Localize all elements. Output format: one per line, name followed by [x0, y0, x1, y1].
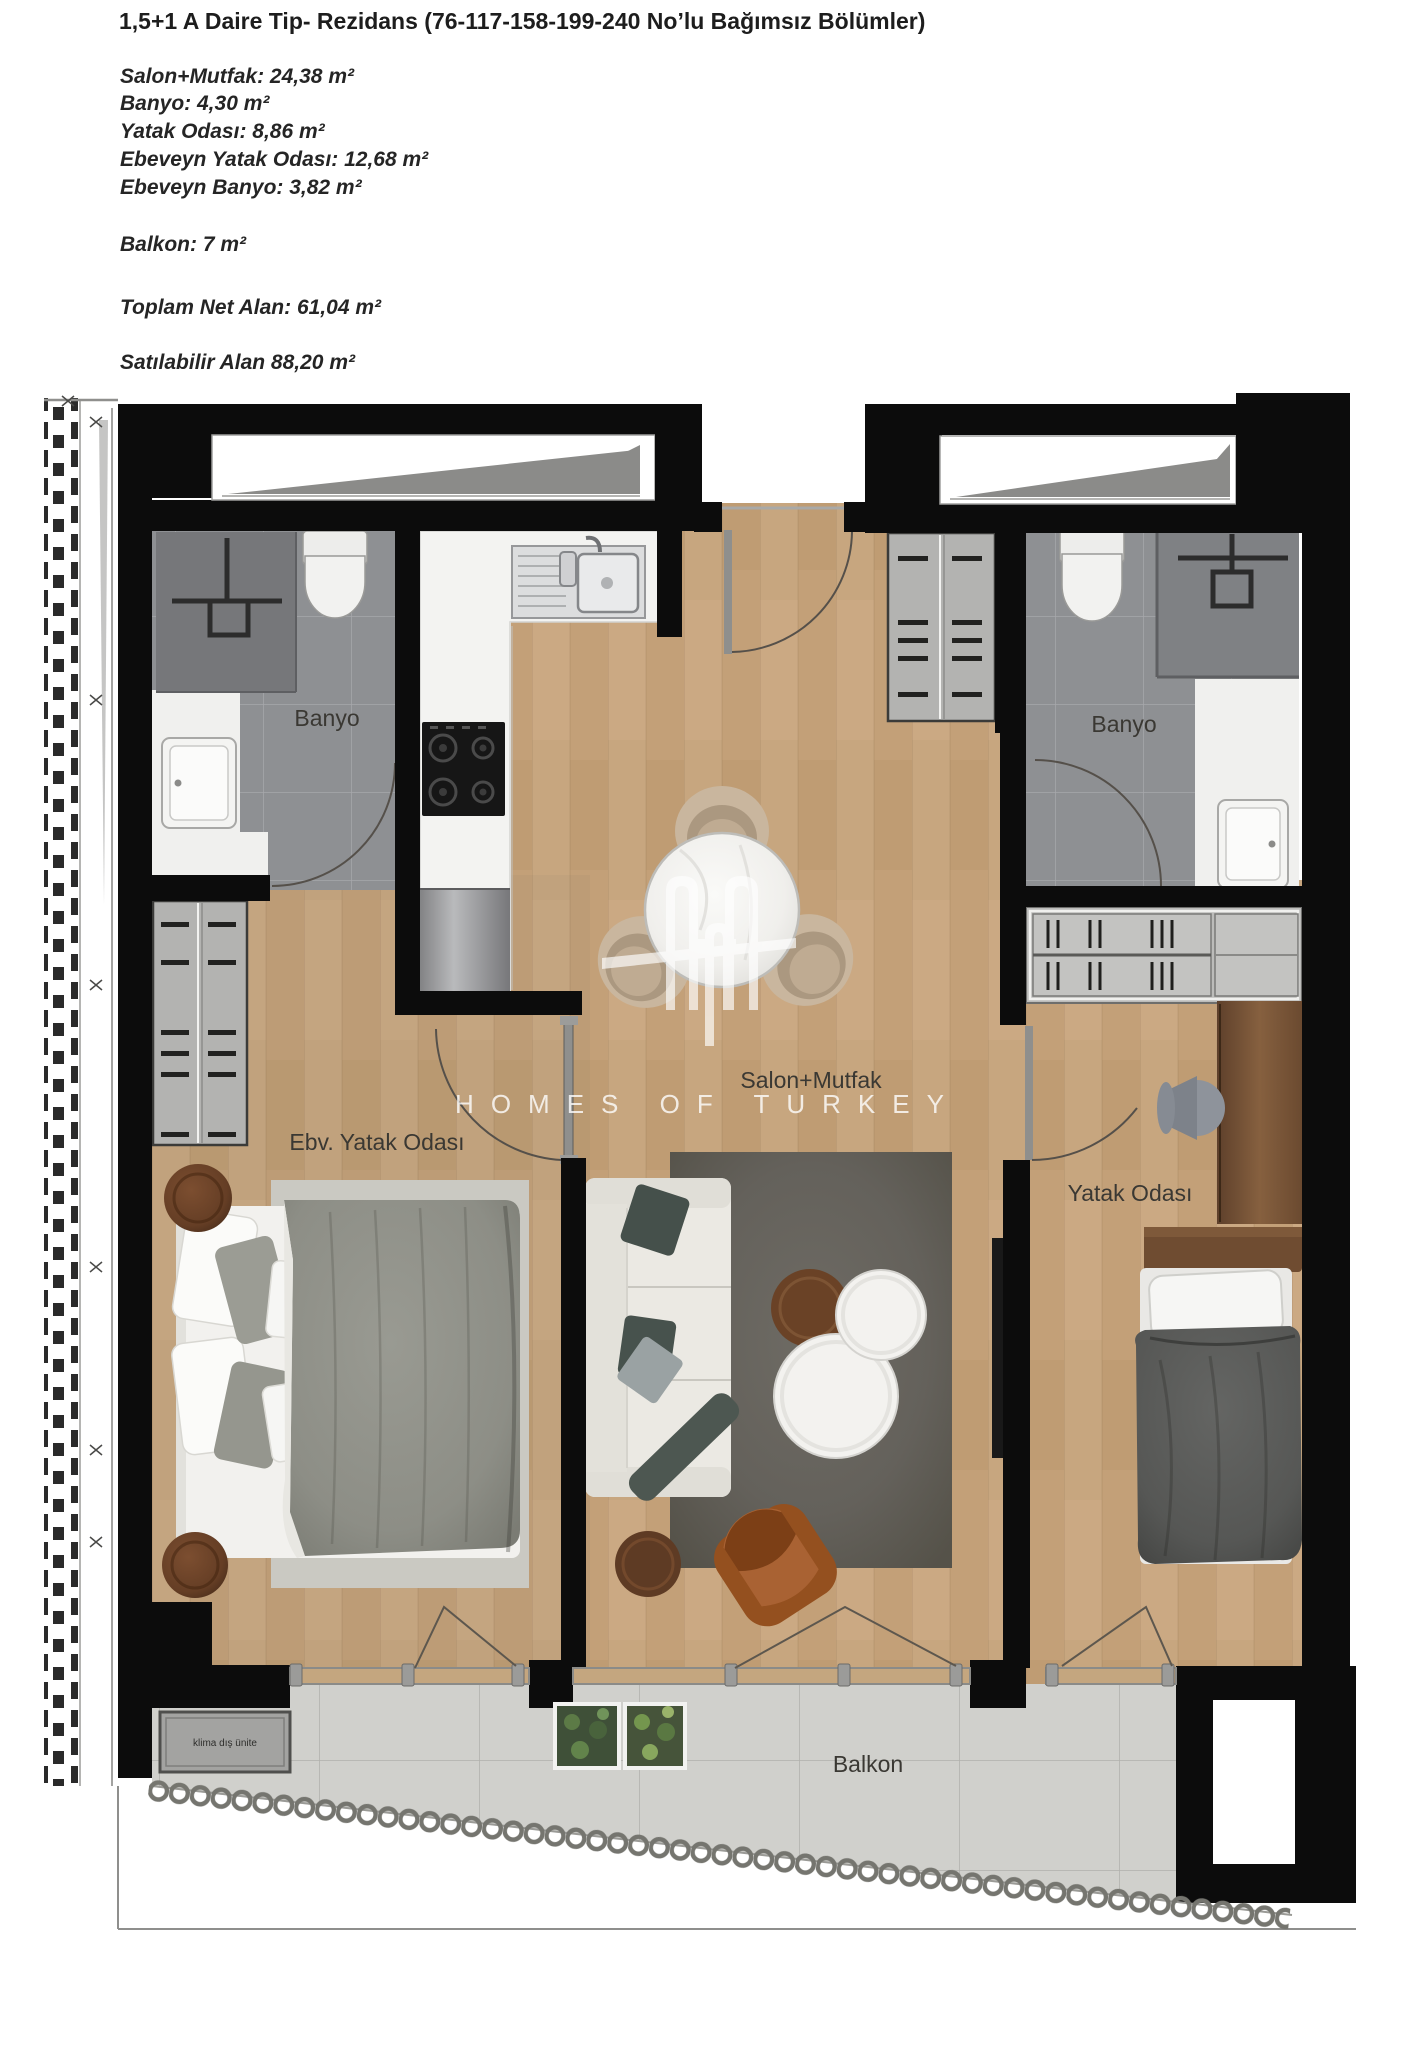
svg-text:Salon+Mutfak: 24,38 m²: Salon+Mutfak: 24,38 m²: [120, 65, 355, 88]
svg-text:Banyo: 4,30 m²: Banyo: 4,30 m²: [120, 92, 270, 115]
svg-text:Ebeveyn Yatak Odası: 12,68 m²: Ebeveyn Yatak Odası: 12,68 m²: [120, 148, 429, 171]
svg-text:Yatak Odası: Yatak Odası: [1068, 1180, 1193, 1206]
svg-text:1,5+1 A Daire Tip- Rezidans (7: 1,5+1 A Daire Tip- Rezidans (76-117-158-…: [119, 8, 925, 34]
svg-text:Salon+Mutfak: Salon+Mutfak: [740, 1067, 882, 1093]
svg-text:Banyo: Banyo: [1091, 711, 1156, 737]
svg-text:HOMES OF TURKEY: HOMES OF TURKEY: [455, 1089, 961, 1119]
svg-text:Banyo: Banyo: [294, 705, 359, 731]
svg-text:klima dış ünite: klima dış ünite: [193, 1738, 257, 1749]
svg-text:Satılabilir Alan 88,20 m²: Satılabilir Alan 88,20 m²: [120, 351, 356, 374]
svg-text:Balkon: Balkon: [833, 1751, 903, 1777]
svg-text:Yatak Odası: 8,86 m²: Yatak Odası: 8,86 m²: [120, 120, 326, 143]
svg-text:Balkon: 7 m²: Balkon: 7 m²: [120, 233, 247, 256]
svg-text:Ebeveyn Banyo: 3,82 m²: Ebeveyn Banyo: 3,82 m²: [120, 176, 363, 199]
svg-text:Toplam Net Alan: 61,04 m²: Toplam Net Alan: 61,04 m²: [120, 296, 382, 319]
svg-text:Ebv. Yatak Odası: Ebv. Yatak Odası: [289, 1129, 464, 1155]
